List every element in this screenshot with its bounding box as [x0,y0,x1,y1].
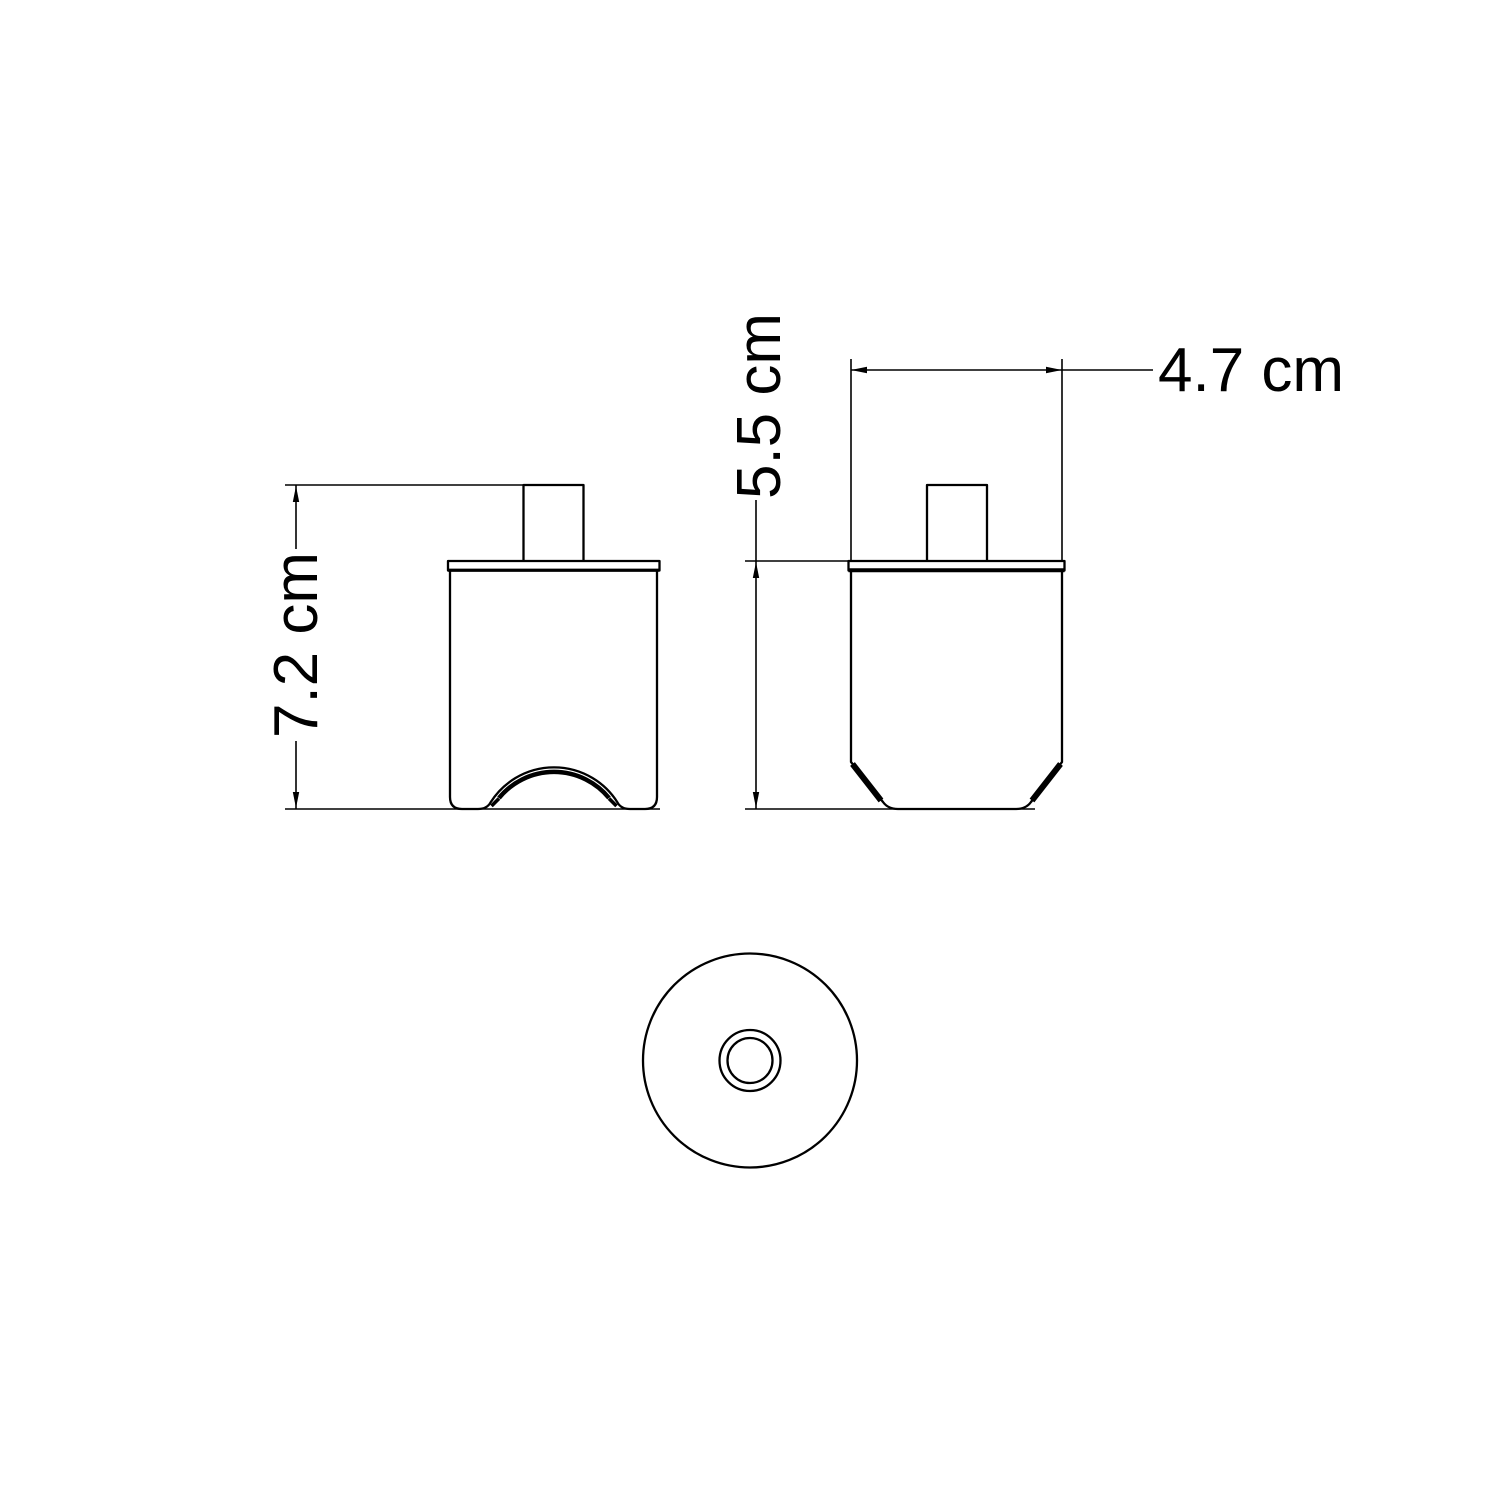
dimension-side-width: 4.7 cm [851,336,1344,560]
arrowhead-up-icon [753,562,759,578]
bottom-view [643,954,857,1168]
bottom-center-hole [728,1038,773,1083]
drawing-svg: 7.2 cm 5.5 cm 4.7 cm [0,0,1500,1500]
arrowhead-right-icon [1046,367,1062,373]
front-view [448,485,660,809]
arrowhead-up-icon [293,486,299,502]
side-stud [927,485,987,565]
dimension-label-side-width: 4.7 cm [1158,336,1344,405]
arrowhead-down-icon [753,792,759,808]
technical-drawing-canvas: 7.2 cm 5.5 cm 4.7 cm [0,0,1500,1500]
dimension-label-side-height: 5.5 cm [725,313,794,499]
arrowhead-down-icon [293,792,299,808]
side-view [849,485,1065,809]
dimension-label-front-height: 7.2 cm [262,552,331,738]
front-stud [524,485,584,565]
side-body-outline [851,571,1062,810]
arrowhead-left-icon [851,367,867,373]
